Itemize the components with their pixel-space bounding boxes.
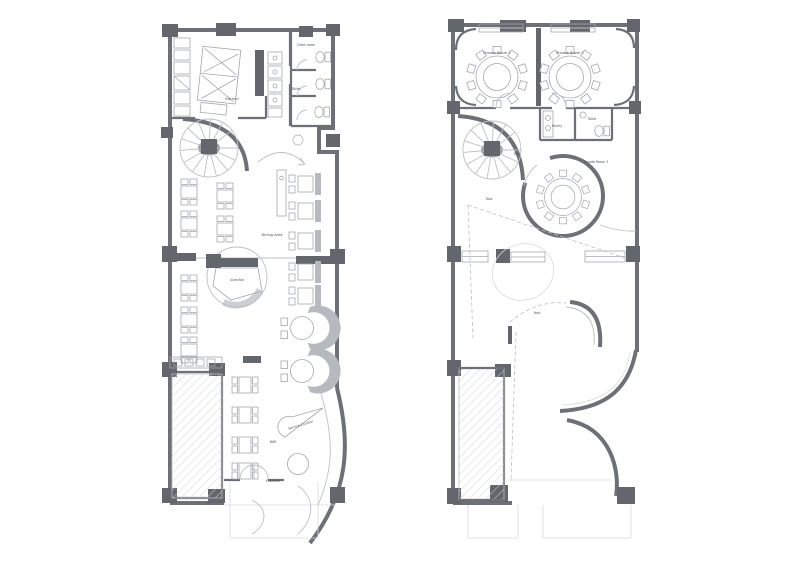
upper-canopy-outline bbox=[468, 505, 631, 538]
private-room-1-label: Private Room 1 bbox=[483, 51, 510, 55]
private-room-3-label: Private Room 3 bbox=[584, 160, 608, 164]
lower-floor-plan: Kitchen Clean room Toilet Dining Area Ju… bbox=[161, 23, 345, 543]
kitchen-island bbox=[196, 46, 241, 116]
round-table-10 bbox=[536, 170, 589, 224]
stair-down-label: Dn bbox=[514, 152, 518, 156]
round-table-10 bbox=[467, 47, 527, 108]
terrace-hatch bbox=[172, 374, 222, 498]
void-label: Void bbox=[534, 311, 541, 315]
bar-table bbox=[288, 454, 309, 475]
private-room-2 bbox=[540, 47, 600, 108]
toilet-room bbox=[580, 112, 610, 136]
spiral-staircase bbox=[180, 119, 238, 177]
room-divider-wall bbox=[536, 28, 541, 106]
toilet-label: Toilet bbox=[291, 87, 301, 91]
entrance-label: Entrance bbox=[266, 479, 280, 483]
pantry-label: Pantry bbox=[552, 124, 562, 128]
kitchen-label: Kitchen bbox=[225, 97, 239, 101]
private-room-2-label: Private Room 2 bbox=[556, 51, 583, 55]
plant-icon bbox=[293, 135, 303, 145]
display-console bbox=[277, 170, 286, 216]
restrooms bbox=[297, 52, 331, 120]
private-room-3 bbox=[524, 165, 636, 231]
dining-tables-left bbox=[181, 179, 197, 363]
curved-booths bbox=[281, 306, 341, 394]
wc-icon bbox=[315, 107, 330, 118]
wc-icon bbox=[316, 52, 331, 63]
mid-band-planters bbox=[462, 251, 625, 262]
lower-dining-tables bbox=[232, 377, 258, 479]
round-table-10 bbox=[540, 47, 600, 108]
dining-tables-center bbox=[217, 183, 233, 242]
toilet-label: Toilet bbox=[587, 117, 597, 121]
floor-plan-drawing: Kitchen Clean room Toilet Dining Area Ju… bbox=[0, 0, 800, 566]
floor-plan-canvas: Kitchen Clean room Toilet Dining Area Ju… bbox=[0, 0, 800, 566]
bar-label: BAR bbox=[270, 440, 277, 444]
circulation-arrow bbox=[258, 152, 305, 165]
private-room-1 bbox=[467, 47, 527, 108]
booth-seating-right bbox=[289, 173, 321, 307]
sink-icon bbox=[580, 112, 586, 118]
clean-room-label: Clean room bbox=[297, 43, 315, 47]
juice-bar-label: Juice Bar bbox=[229, 278, 245, 282]
dining-area-label: Dining Area bbox=[261, 233, 282, 237]
terrace-hatch bbox=[459, 368, 504, 500]
wc-icon bbox=[316, 79, 331, 90]
upper-floor-plan: Private Room 1 Private Room 2 Private Ro… bbox=[447, 19, 641, 538]
kitchen-pass-counter bbox=[255, 50, 264, 96]
wc-icon bbox=[595, 126, 610, 137]
spiral-staircase bbox=[463, 121, 521, 179]
inner-arc-line bbox=[562, 352, 630, 405]
oval-floor-outline bbox=[485, 236, 561, 308]
void-label: Void bbox=[486, 197, 493, 201]
